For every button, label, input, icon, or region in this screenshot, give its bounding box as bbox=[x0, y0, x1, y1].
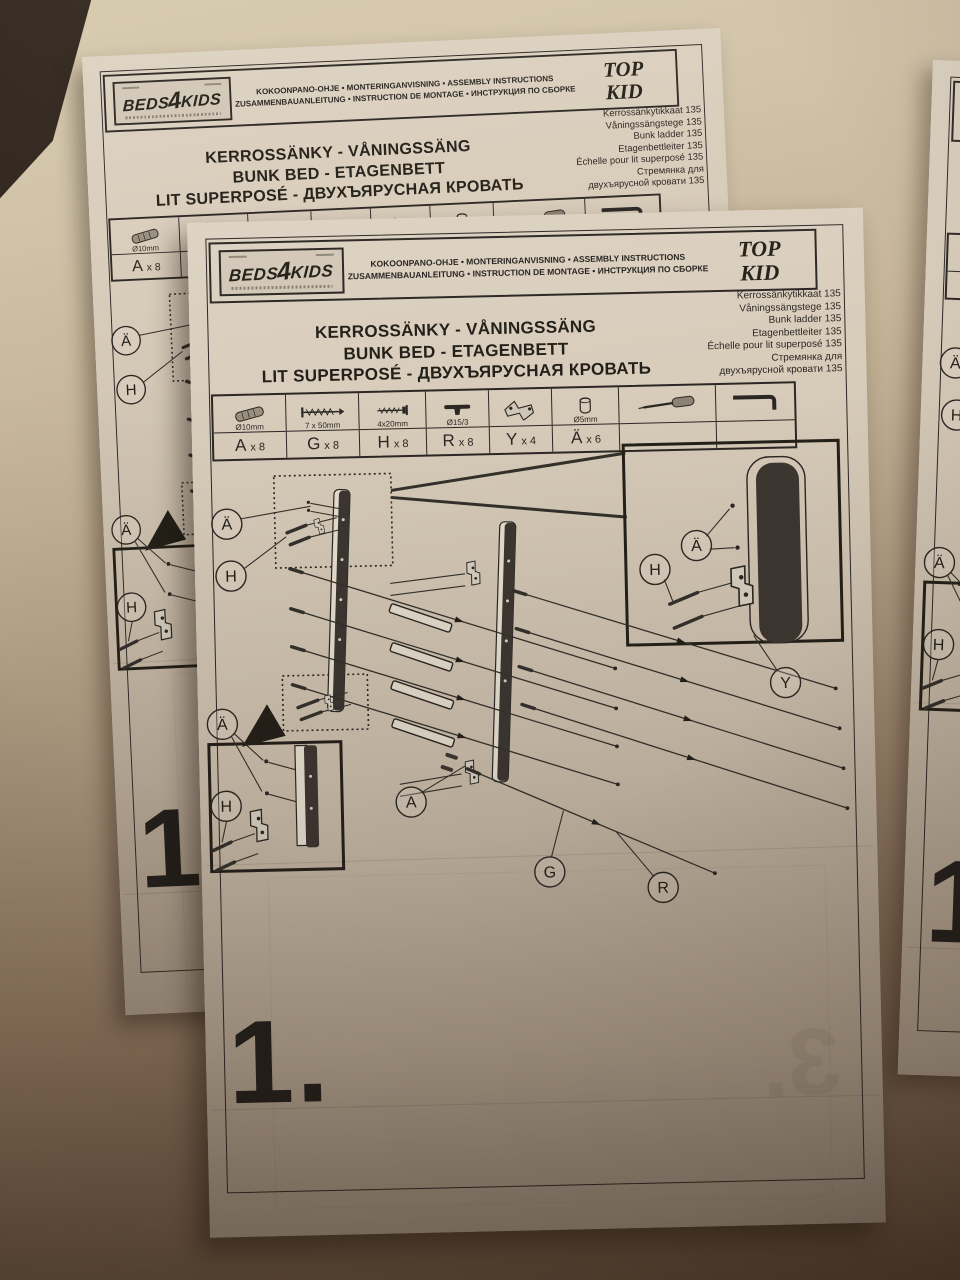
part-callout-h: H bbox=[117, 592, 147, 622]
dowel-icon: Ø10mm bbox=[110, 217, 180, 255]
model-name-top: TOP bbox=[712, 235, 807, 261]
part-callout-ä: Ä bbox=[212, 509, 243, 540]
svg-text:H: H bbox=[951, 407, 960, 424]
svg-text:Ä: Ä bbox=[121, 333, 133, 350]
part-callout-ä: Ä bbox=[111, 326, 141, 356]
svg-text:Ä: Ä bbox=[691, 537, 702, 555]
model-name-kid: KID bbox=[712, 259, 807, 285]
parts-table-column: 4x20mmHx 8 bbox=[358, 392, 426, 457]
step-number: 1. bbox=[924, 842, 960, 964]
product-name-list: Kerrossänkytikkaat 135Våningssängstege 1… bbox=[706, 288, 842, 379]
part-callout-h: H bbox=[923, 629, 954, 660]
svg-text:H: H bbox=[225, 568, 237, 585]
part-size: Ø15/3 bbox=[426, 417, 488, 427]
part-size: 4x20mm bbox=[360, 419, 426, 429]
svg-text:A: A bbox=[406, 794, 417, 811]
dowel-icon: Ø10mm bbox=[948, 235, 960, 274]
svg-text:Ä: Ä bbox=[221, 516, 232, 534]
logo-smallprint-bar bbox=[122, 86, 139, 89]
page-title: KERROSSÄNKY - VÅNINGSSÄNGBUNK BED - ETAG… bbox=[229, 314, 682, 389]
svg-text:Ä: Ä bbox=[934, 554, 946, 572]
header-instructions: KOKOONPANO-OHJE • MONTERINGANVISNING • A… bbox=[230, 71, 579, 109]
svg-text:H: H bbox=[125, 382, 137, 399]
part-size: 7 x 50mm bbox=[287, 420, 359, 431]
part-callout-a: A bbox=[396, 787, 427, 818]
part-callout-ä: Ä bbox=[681, 530, 712, 561]
svg-text:H: H bbox=[126, 599, 138, 616]
short-screw-icon: 4x20mm bbox=[359, 392, 426, 430]
part-callout-h: H bbox=[216, 561, 247, 592]
cap-nut-icon: Ø5mm bbox=[552, 387, 619, 425]
part-callout-ä: Ä bbox=[924, 547, 955, 578]
part-callout-h: H bbox=[640, 554, 671, 585]
show-through-step-number: 3. bbox=[757, 1006, 844, 1121]
assembly-diagram: ÄHÄHAGRÄHY bbox=[192, 438, 879, 933]
parts-table-column: Ø15/3Rx 8 bbox=[425, 390, 489, 454]
parts-table-column: Yx 4 bbox=[488, 389, 552, 453]
model-name: TOP KID bbox=[578, 55, 677, 105]
instruction-sheet-front: BEDS4KIDS KOKOONPANO-OHJE • MONTERINGANV… bbox=[187, 208, 886, 1238]
part-size: Ø10mm bbox=[111, 243, 179, 255]
screwdriver-icon bbox=[619, 385, 716, 424]
model-name: TOP KID bbox=[712, 235, 816, 285]
parts-table-column bbox=[715, 383, 795, 448]
part-size: Ø10mm bbox=[948, 262, 960, 274]
part-callout-y: Y bbox=[770, 667, 801, 698]
brand-logo-4: 4 bbox=[276, 257, 293, 288]
part-callout-ä: Ä bbox=[940, 347, 960, 378]
part-callout-ä: Ä bbox=[207, 709, 238, 740]
brand-logo: BEDS4KIDS bbox=[112, 76, 232, 125]
part-callout-h: H bbox=[211, 791, 242, 822]
header-instructions: KOKOONPANO-OHJE • MONTERINGANVISNING • A… bbox=[343, 250, 712, 282]
svg-text:Ä: Ä bbox=[950, 354, 960, 372]
svg-text:Ä: Ä bbox=[217, 716, 228, 734]
svg-text:Ä: Ä bbox=[121, 522, 133, 539]
assembly-diagram: ÄHÄHAGRÄHY bbox=[908, 290, 960, 793]
parts-table-column: Ø5mmÄx 6 bbox=[551, 387, 619, 452]
part-size: Ø10mm bbox=[214, 422, 286, 433]
part-callout-h: H bbox=[941, 400, 960, 431]
allen-key-icon bbox=[716, 383, 795, 422]
parts-table-column: Ø10mmAx 8 bbox=[213, 395, 286, 460]
part-callout-h: H bbox=[116, 375, 146, 405]
svg-text:H: H bbox=[220, 799, 232, 816]
instruction-sheet: BEDS4KIDS KOKOONPANO-OHJE • MONTERINGANV… bbox=[933, 60, 960, 84]
model-name-kid: KID bbox=[579, 78, 670, 105]
z-bracket-icon bbox=[489, 389, 552, 427]
brand-logo-4: 4 bbox=[167, 87, 183, 117]
part-callout-ä: Ä bbox=[111, 515, 141, 545]
svg-text:H: H bbox=[649, 562, 661, 579]
cover-cap-icon: Ø15/3 bbox=[426, 390, 489, 428]
instruction-sheet-right: BEDS4KIDS KOKOONPANO-OHJE • MONTERINGANV… bbox=[898, 60, 960, 1098]
logo-smallprint-bar bbox=[229, 255, 247, 257]
brand-logo-text: BEDS4KIDS bbox=[228, 254, 334, 288]
step-number: 1. bbox=[227, 1002, 332, 1122]
part-size: Ø5mm bbox=[552, 414, 618, 424]
brand-logo: BEDS4KIDS bbox=[219, 247, 345, 296]
dowel-icon: Ø10mm bbox=[213, 395, 286, 434]
long-screw-icon: 7 x 50mm bbox=[286, 393, 359, 432]
svg-text:H: H bbox=[932, 637, 944, 654]
instruction-sheet: BEDS4KIDS KOKOONPANO-OHJE • MONTERINGANV… bbox=[82, 28, 720, 57]
show-through-outline bbox=[268, 865, 833, 1210]
product-name-list: Kerrossänkytikkaat 135Våningssängstege 1… bbox=[574, 105, 705, 193]
svg-text:Y: Y bbox=[780, 675, 791, 692]
photo-scene: BEDS4KIDS KOKOONPANO-OHJE • MONTERINGANV… bbox=[0, 0, 960, 1280]
parts-table-column: 7 x 50mmGx 8 bbox=[285, 393, 359, 458]
